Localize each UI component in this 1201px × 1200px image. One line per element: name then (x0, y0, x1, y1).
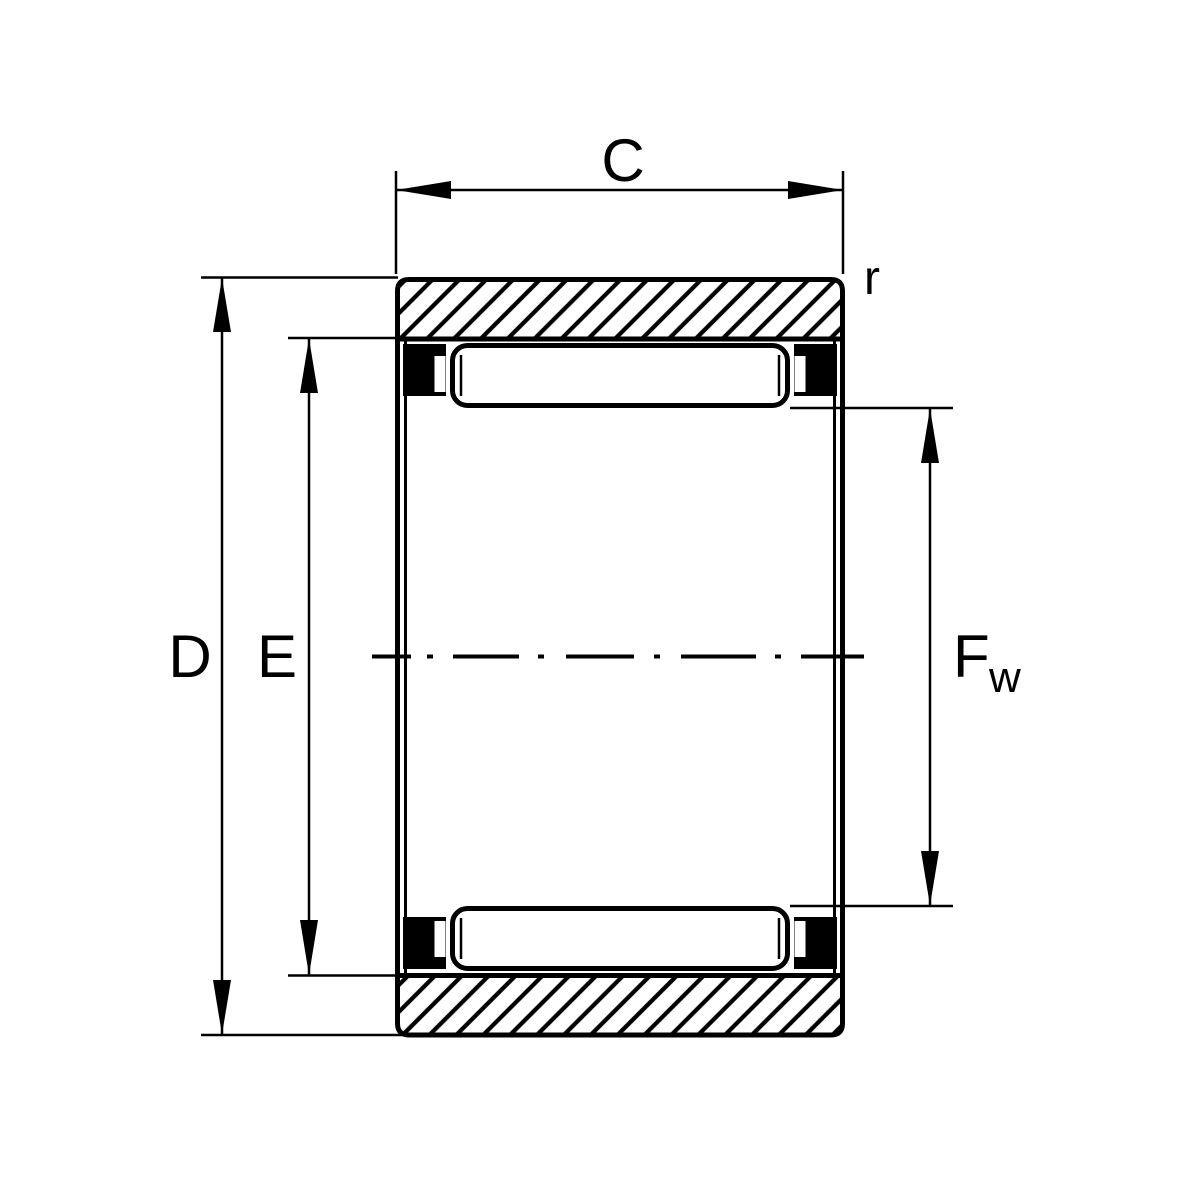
outer-ring-top-section (398, 280, 843, 340)
cage-slot-bottom-left (435, 921, 446, 957)
cage-slot-top-right (795, 356, 806, 392)
dim-e-label: E (257, 623, 297, 690)
dim-d-label: D (168, 623, 211, 690)
cage-slot-bottom-right (795, 921, 806, 957)
outer-ring-bottom-section (398, 976, 843, 1036)
bearing-section-drawing: C r D E F w (0, 0, 1201, 1200)
needle-bearing-cross-section-svg: C r D E F w (0, 0, 1201, 1200)
needle-roller-bottom (453, 909, 788, 969)
dim-fw-label-subscript: w (988, 653, 1021, 702)
dim-c-label: C (601, 127, 644, 194)
dim-fw-label-main: F (953, 623, 990, 690)
dim-r-label: r (864, 252, 880, 305)
needle-roller-top (453, 346, 788, 406)
cage-slot-top-left (435, 356, 446, 392)
